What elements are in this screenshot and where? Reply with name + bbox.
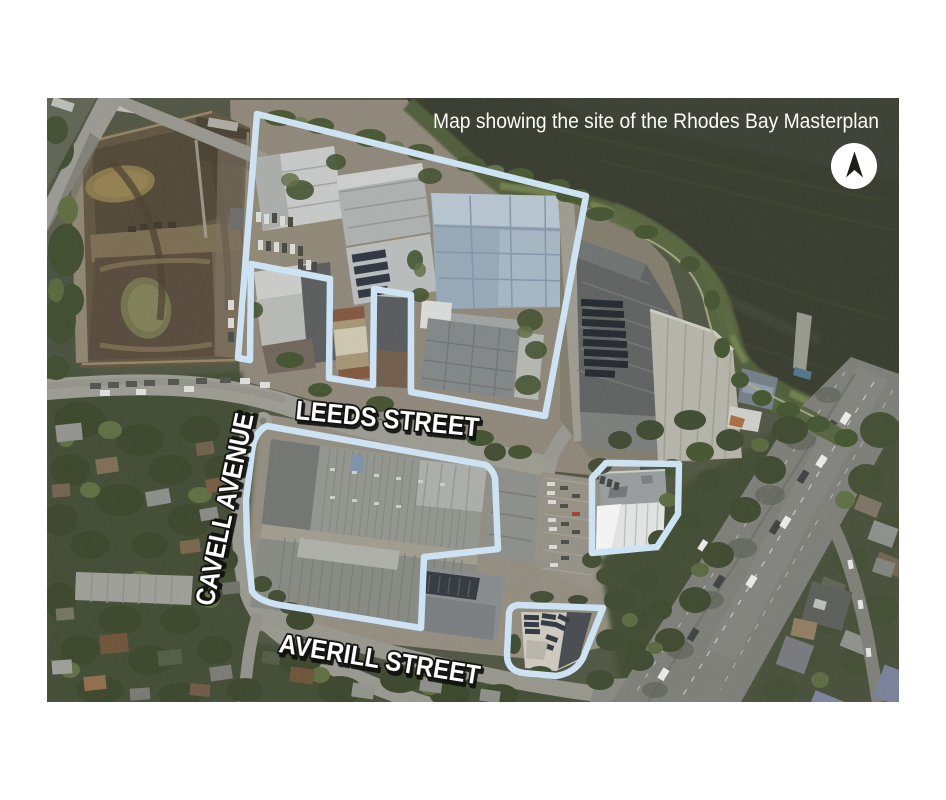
svg-text:Map showing the site of the Rh: Map showing the site of the Rhodes Bay M…	[433, 109, 879, 133]
